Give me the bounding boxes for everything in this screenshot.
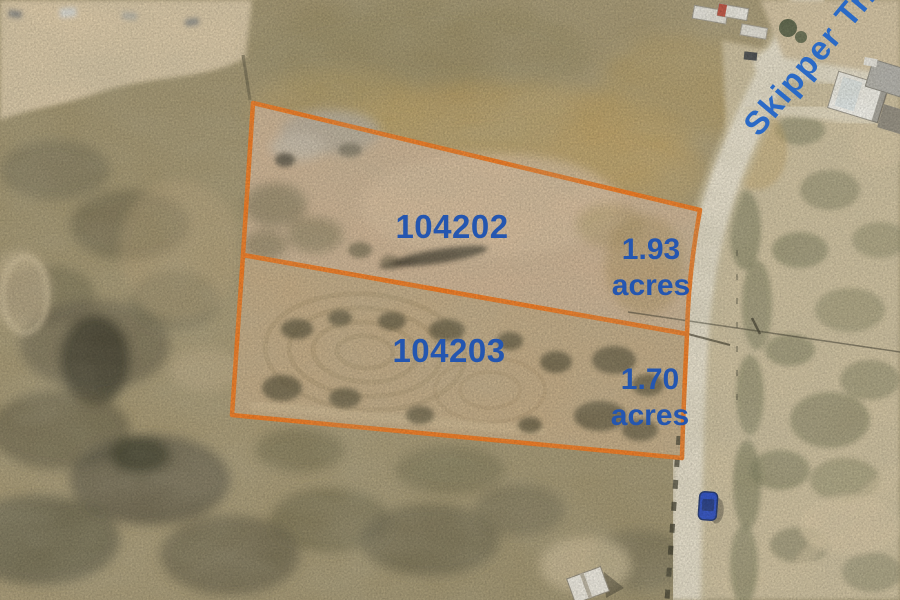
acres-unit: acres xyxy=(612,268,690,304)
parcel-id-label-104202: 104202 xyxy=(395,208,508,246)
parcel-acres-label-104202: 1.93 acres xyxy=(612,232,690,304)
acres-unit: acres xyxy=(611,398,689,434)
parcel-acres-label-104203: 1.70 acres xyxy=(611,362,689,434)
acres-value: 1.70 xyxy=(621,362,679,398)
aerial-photo: 104202 1.93 acres 104203 1.70 acres Skip… xyxy=(0,0,900,600)
acres-value: 1.93 xyxy=(622,232,680,268)
parcel-id-label-104203: 104203 xyxy=(392,332,505,370)
